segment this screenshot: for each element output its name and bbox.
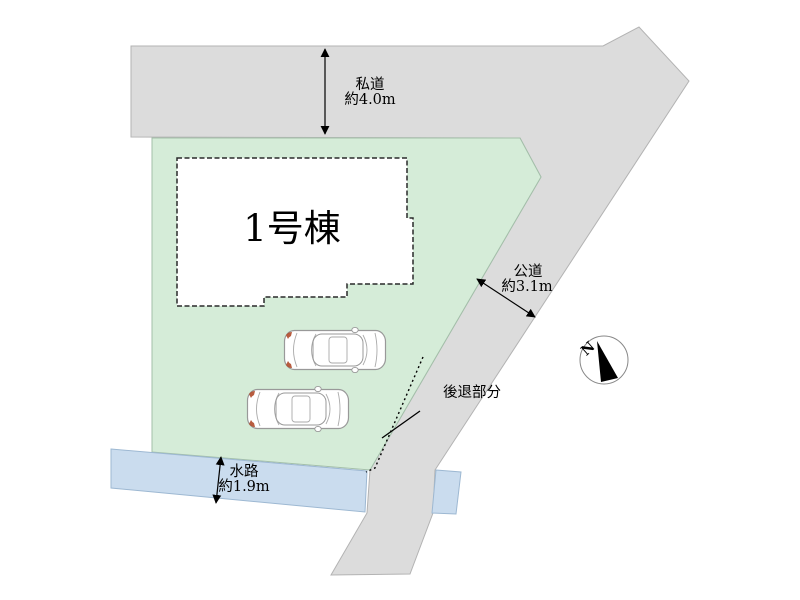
private-road-name-label: 私道 [356,76,385,93]
waterway-area-right [432,470,461,514]
car-icon [285,327,386,372]
setback-label: 後退部分 [443,384,501,401]
site-plan-canvas: 1号棟 後退部分 私道 約4.0m 公道 約3.1m 水路 約1.9m N [0,0,800,600]
waterway-width-label: 約1.9m [218,478,270,495]
public-road-name-label: 公道 [514,263,543,280]
north-compass-icon: N [578,336,628,384]
private-road-width-label: 約4.0m [344,91,396,108]
building-label: 1号棟 [243,207,341,250]
site-plan-drawing: 1号棟 後退部分 私道 約4.0m 公道 約3.1m 水路 約1.9m N [0,0,800,600]
car-icon [248,386,349,431]
public-road-width-label: 約3.1m [501,278,553,295]
waterway-name-label: 水路 [230,463,259,480]
